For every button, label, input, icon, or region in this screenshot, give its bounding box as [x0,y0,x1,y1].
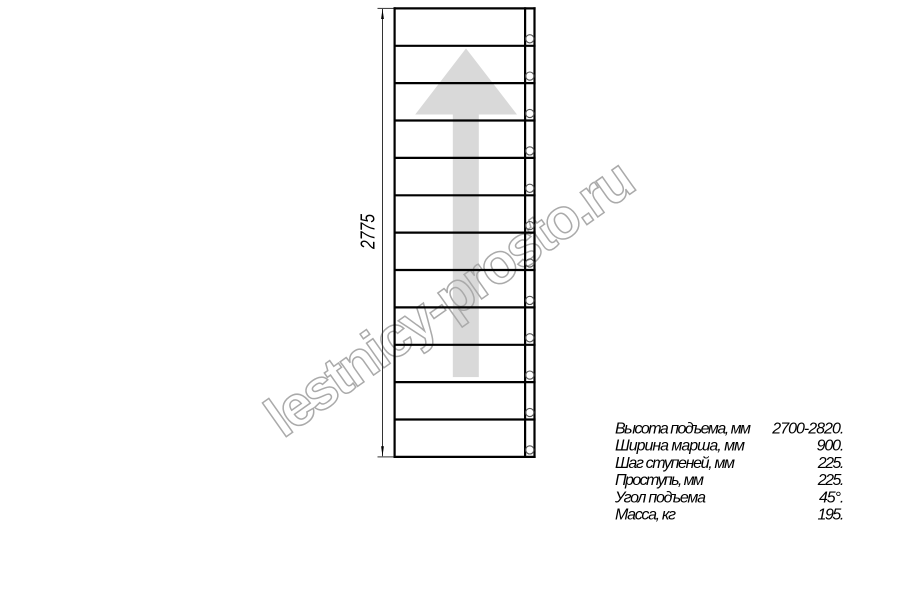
svg-text:225.: 225. [817,455,845,472]
svg-text:Ширина марша, мм: Ширина марша, мм [615,438,745,455]
svg-text:900.: 900. [817,438,845,455]
svg-text:225.: 225. [817,472,845,489]
svg-text:Масса, кг: Масса, кг [615,507,676,524]
svg-text:lestnicy-prosto.ru: lestnicy-prosto.ru [254,148,645,450]
svg-text:Шаг ступеней, мм: Шаг ступеней, мм [615,455,735,472]
svg-text:Проступь, мм: Проступь, мм [615,472,704,489]
svg-text:45°.: 45°. [819,489,844,506]
svg-text:2775: 2775 [358,213,380,249]
svg-text:2700-2820.: 2700-2820. [771,421,844,438]
svg-text:Высота подъема, мм: Высота подъема, мм [615,421,751,438]
svg-text:Угол подъема: Угол подъема [614,489,706,506]
svg-text:195.: 195. [818,507,845,524]
